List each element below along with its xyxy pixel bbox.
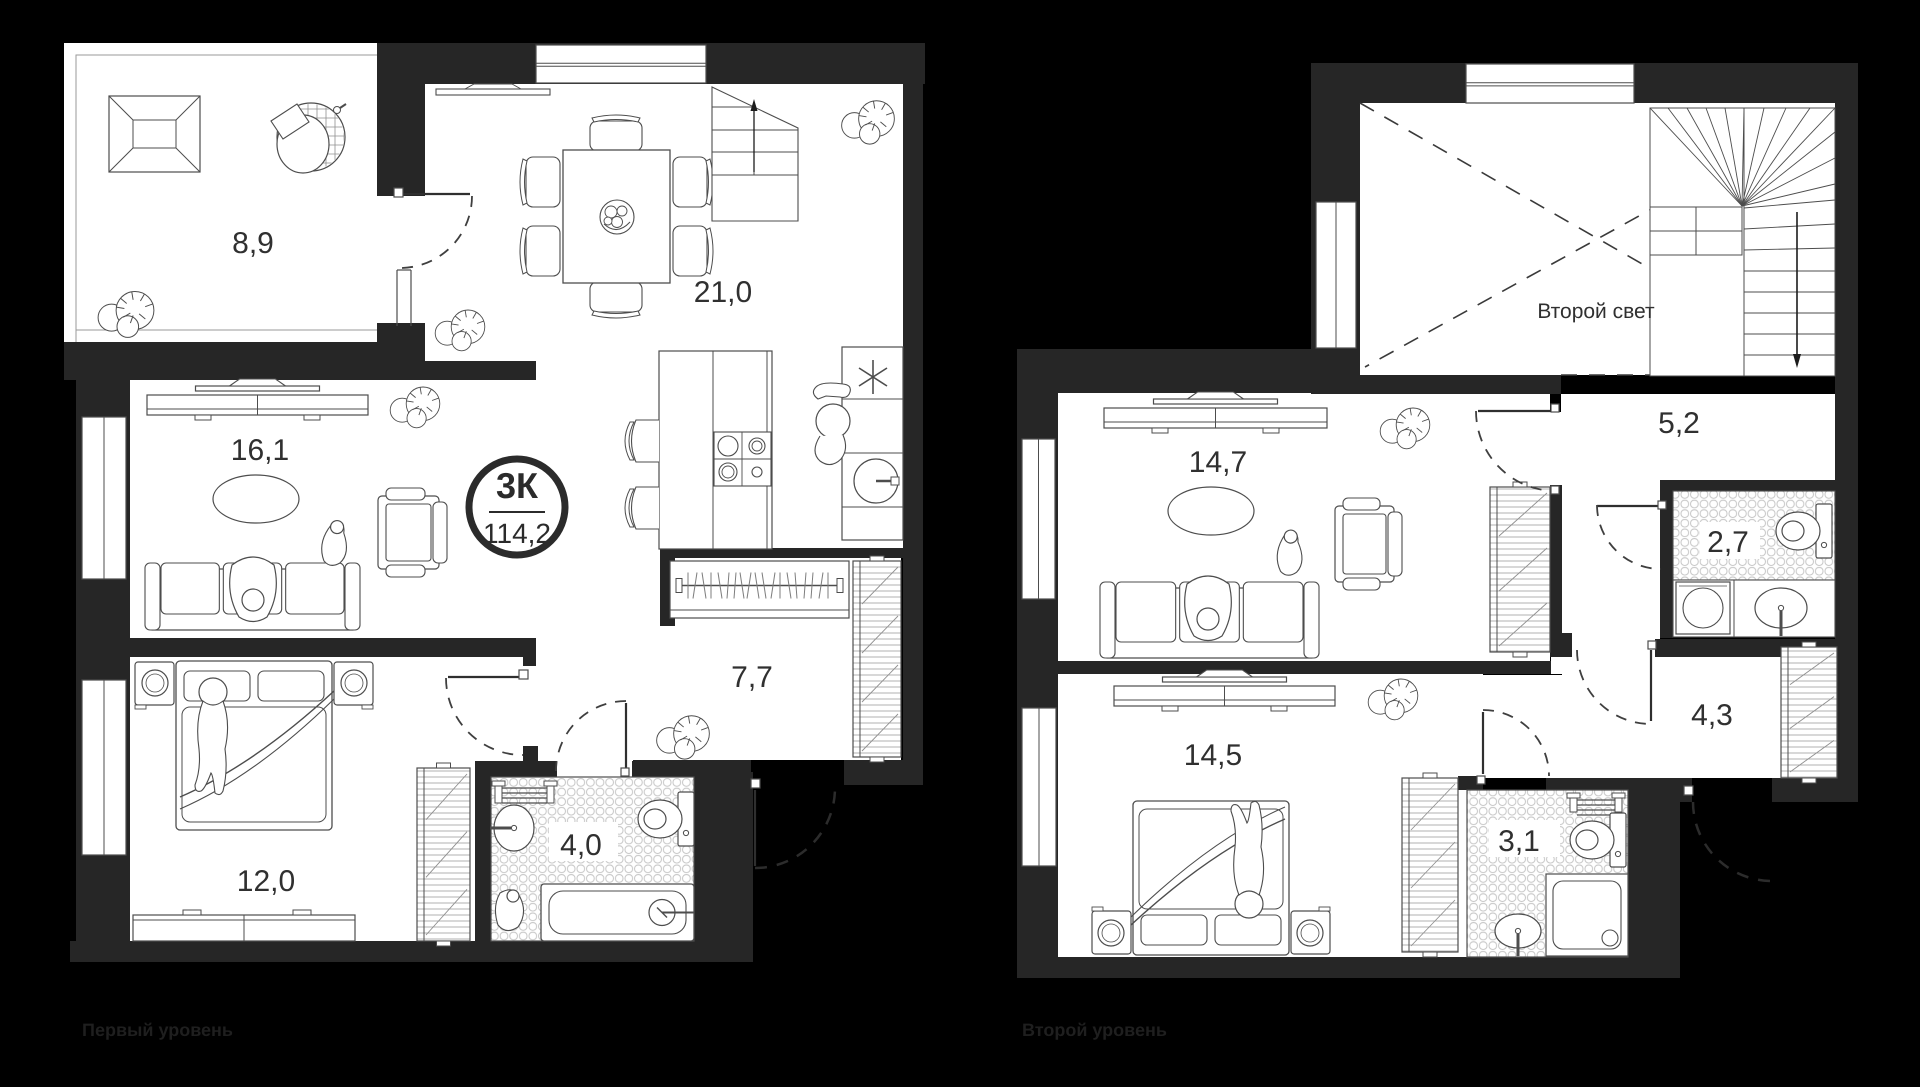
svg-text:114,2: 114,2 (483, 518, 551, 549)
svg-text:Второй свет: Второй свет (1537, 300, 1655, 323)
svg-text:12,0: 12,0 (237, 865, 295, 898)
svg-text:21,0: 21,0 (694, 276, 752, 309)
svg-text:14,5: 14,5 (1184, 739, 1242, 772)
svg-text:Второй уровень: Второй уровень (1022, 1020, 1167, 1040)
svg-text:3,1: 3,1 (1498, 825, 1540, 858)
svg-text:4,3: 4,3 (1691, 699, 1733, 732)
svg-text:14,7: 14,7 (1189, 446, 1247, 479)
svg-text:Первый уровень: Первый уровень (82, 1020, 233, 1040)
svg-text:3К: 3К (496, 465, 539, 506)
svg-text:5,2: 5,2 (1658, 407, 1700, 440)
svg-text:2,7: 2,7 (1707, 526, 1749, 559)
svg-text:16,1: 16,1 (231, 434, 289, 467)
svg-text:8,9: 8,9 (232, 227, 274, 260)
svg-text:7,7: 7,7 (731, 661, 773, 694)
svg-text:4,0: 4,0 (560, 829, 602, 862)
